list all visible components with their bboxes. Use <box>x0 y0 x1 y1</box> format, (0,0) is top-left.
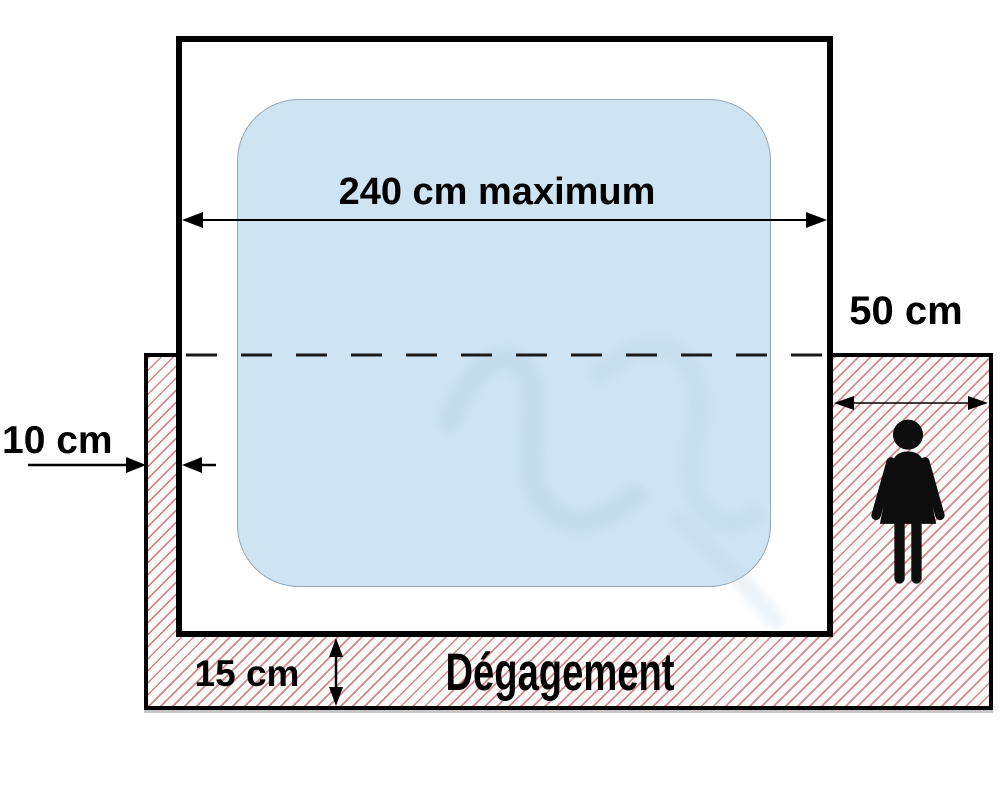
label-max-width: 240 cm maximum <box>297 173 697 213</box>
person-icon <box>861 417 955 597</box>
watermark <box>390 290 790 635</box>
label-side-clearance: 50 cm <box>836 290 976 332</box>
label-wall-gap: 10 cm <box>2 421 112 462</box>
label-bottom-clearance: 15 cm <box>187 655 307 694</box>
diagram-canvas: 240 cm maximum 50 cm 10 cm 15 cm Dégagem… <box>0 0 1000 800</box>
label-clearance-zone: Dégagement <box>416 645 704 701</box>
